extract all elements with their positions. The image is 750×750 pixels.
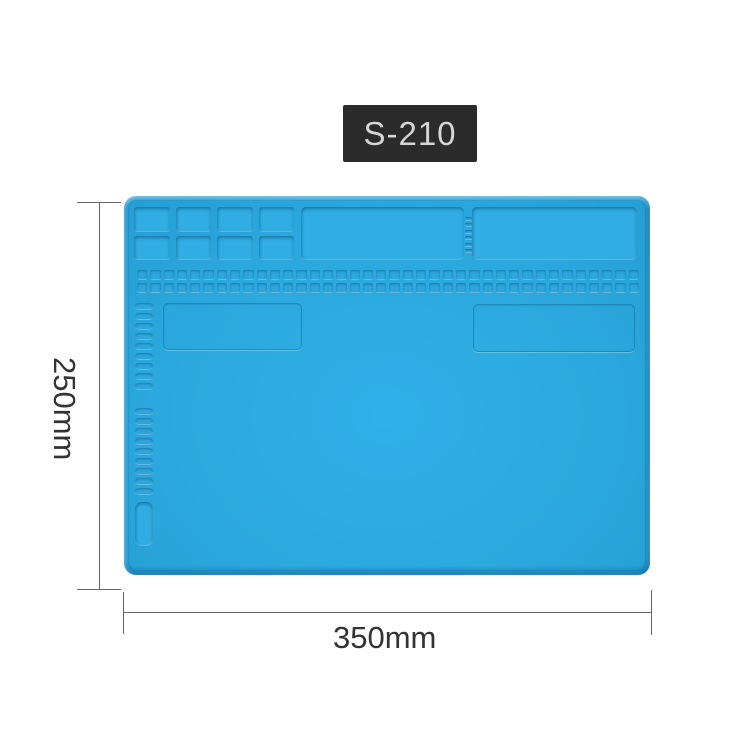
screw-hole <box>576 283 586 293</box>
screw-hole <box>389 270 399 280</box>
screw-hole <box>217 270 227 280</box>
screw-hole <box>629 270 639 280</box>
divider-notch <box>465 236 472 240</box>
screw-hole <box>549 270 559 280</box>
screw-hole <box>576 270 586 280</box>
screw-hole <box>323 283 333 293</box>
pill-slot <box>135 408 153 415</box>
screw-hole <box>429 283 439 293</box>
pill-slot <box>135 303 153 310</box>
screw-hole <box>615 283 625 293</box>
screw-hole <box>615 270 625 280</box>
screw-hole <box>602 270 612 280</box>
screw-hole <box>230 270 240 280</box>
screw-hole <box>243 270 253 280</box>
pill-slot <box>135 428 153 435</box>
screw-hole <box>602 283 612 293</box>
tray-compartment <box>259 236 295 261</box>
pill-slot <box>135 468 153 475</box>
tray-compartment <box>176 207 212 232</box>
divider-notch <box>465 249 472 253</box>
screw-hole-grid <box>137 270 639 293</box>
screw-hole <box>230 283 240 293</box>
screw-hole <box>416 270 426 280</box>
pill-slot <box>135 458 153 465</box>
screw-hole <box>150 283 160 293</box>
silicone-mat <box>124 196 650 575</box>
width-dimension-label: 350mm <box>333 620 436 656</box>
screw-hole <box>203 283 213 293</box>
screw-hole <box>549 283 559 293</box>
screw-hole <box>403 283 413 293</box>
screw-hole <box>589 283 599 293</box>
screw-hole <box>376 270 386 280</box>
screw-hole <box>483 270 493 280</box>
screw-hole <box>389 283 399 293</box>
model-label-plate: S-210 <box>343 105 477 162</box>
screw-hole <box>443 283 453 293</box>
screw-hole <box>310 283 320 293</box>
tray-compartment <box>259 207 295 232</box>
screw-hole <box>203 270 213 280</box>
tray-compartment <box>134 207 170 232</box>
screw-hole <box>137 283 147 293</box>
pill-slot <box>135 448 153 455</box>
divider-notch <box>465 223 472 227</box>
parts-tray-left <box>301 207 464 260</box>
screw-hole <box>562 283 572 293</box>
screw-hole <box>363 283 373 293</box>
pill-slot <box>135 323 153 330</box>
width-dimension-tick-left <box>123 592 124 634</box>
slot-column-lower <box>135 408 153 495</box>
tray-compartment <box>134 236 170 261</box>
pill-slot <box>135 363 153 370</box>
model-label-text: S-210 <box>363 115 456 153</box>
pill-slot <box>135 343 153 350</box>
screw-hole <box>310 270 320 280</box>
screw-hole <box>190 270 200 280</box>
screw-hole <box>403 270 413 280</box>
tray-compartment <box>217 207 253 232</box>
screw-hole <box>363 270 373 280</box>
pill-slot <box>135 383 153 390</box>
pen-slot <box>135 502 153 546</box>
screw-hole <box>217 283 227 293</box>
pill-slot <box>135 488 153 495</box>
screw-hole <box>416 283 426 293</box>
pill-slot <box>135 418 153 425</box>
screw-hole <box>190 283 200 293</box>
screw-hole <box>350 270 360 280</box>
screw-hole <box>177 270 187 280</box>
screw-hole <box>509 270 519 280</box>
screw-hole <box>257 270 267 280</box>
screw-hole <box>336 283 346 293</box>
screw-hole <box>536 270 546 280</box>
screw-hole <box>296 270 306 280</box>
divider-notch <box>465 230 472 234</box>
screw-hole <box>496 283 506 293</box>
tray-compartment <box>217 236 253 261</box>
screw-hole <box>150 270 160 280</box>
screw-hole <box>376 283 386 293</box>
width-dimension-line <box>123 612 652 613</box>
screw-hole <box>469 270 479 280</box>
screw-hole <box>629 283 639 293</box>
screw-hole <box>443 270 453 280</box>
slot-column-upper <box>135 303 153 390</box>
screw-hole <box>522 270 532 280</box>
pill-slot <box>135 373 153 380</box>
screw-hole <box>536 283 546 293</box>
height-dimension-tick-top <box>77 202 121 203</box>
screw-hole <box>350 283 360 293</box>
height-dimension-line <box>99 202 100 589</box>
screw-hole <box>243 283 253 293</box>
parts-tray-right <box>472 207 637 260</box>
pill-slot <box>135 333 153 340</box>
screw-hole <box>257 283 267 293</box>
tray-divider-notches <box>465 217 472 253</box>
screw-hole <box>323 270 333 280</box>
divider-notch <box>465 217 472 221</box>
screw-hole <box>429 270 439 280</box>
pill-slot <box>135 353 153 360</box>
screw-hole <box>456 283 466 293</box>
width-dimension-tick-right <box>651 590 652 635</box>
screw-hole <box>283 283 293 293</box>
height-dimension-label: 250mm <box>46 357 82 460</box>
screw-hole <box>283 270 293 280</box>
pill-slot <box>135 438 153 445</box>
screw-hole <box>177 283 187 293</box>
screw-hole <box>164 270 174 280</box>
screw-hole <box>509 283 519 293</box>
screw-hole <box>562 270 572 280</box>
screw-hole <box>164 283 174 293</box>
screw-hole <box>336 270 346 280</box>
screw-hole <box>469 283 479 293</box>
divider-notch <box>465 243 472 247</box>
compartment-grid <box>134 207 294 260</box>
screw-hole <box>522 283 532 293</box>
screw-hole <box>589 270 599 280</box>
height-dimension-tick-bottom <box>77 589 121 590</box>
screw-hole <box>456 270 466 280</box>
screw-hole <box>137 270 147 280</box>
screw-hole <box>296 283 306 293</box>
marking-rect-right <box>473 304 635 352</box>
screw-hole <box>496 270 506 280</box>
screw-hole <box>483 283 493 293</box>
screw-hole <box>270 283 280 293</box>
screw-hole <box>270 270 280 280</box>
marking-rect-left <box>163 303 302 350</box>
pill-slot <box>135 313 153 320</box>
pill-slot <box>135 478 153 485</box>
tray-compartment <box>176 236 212 261</box>
